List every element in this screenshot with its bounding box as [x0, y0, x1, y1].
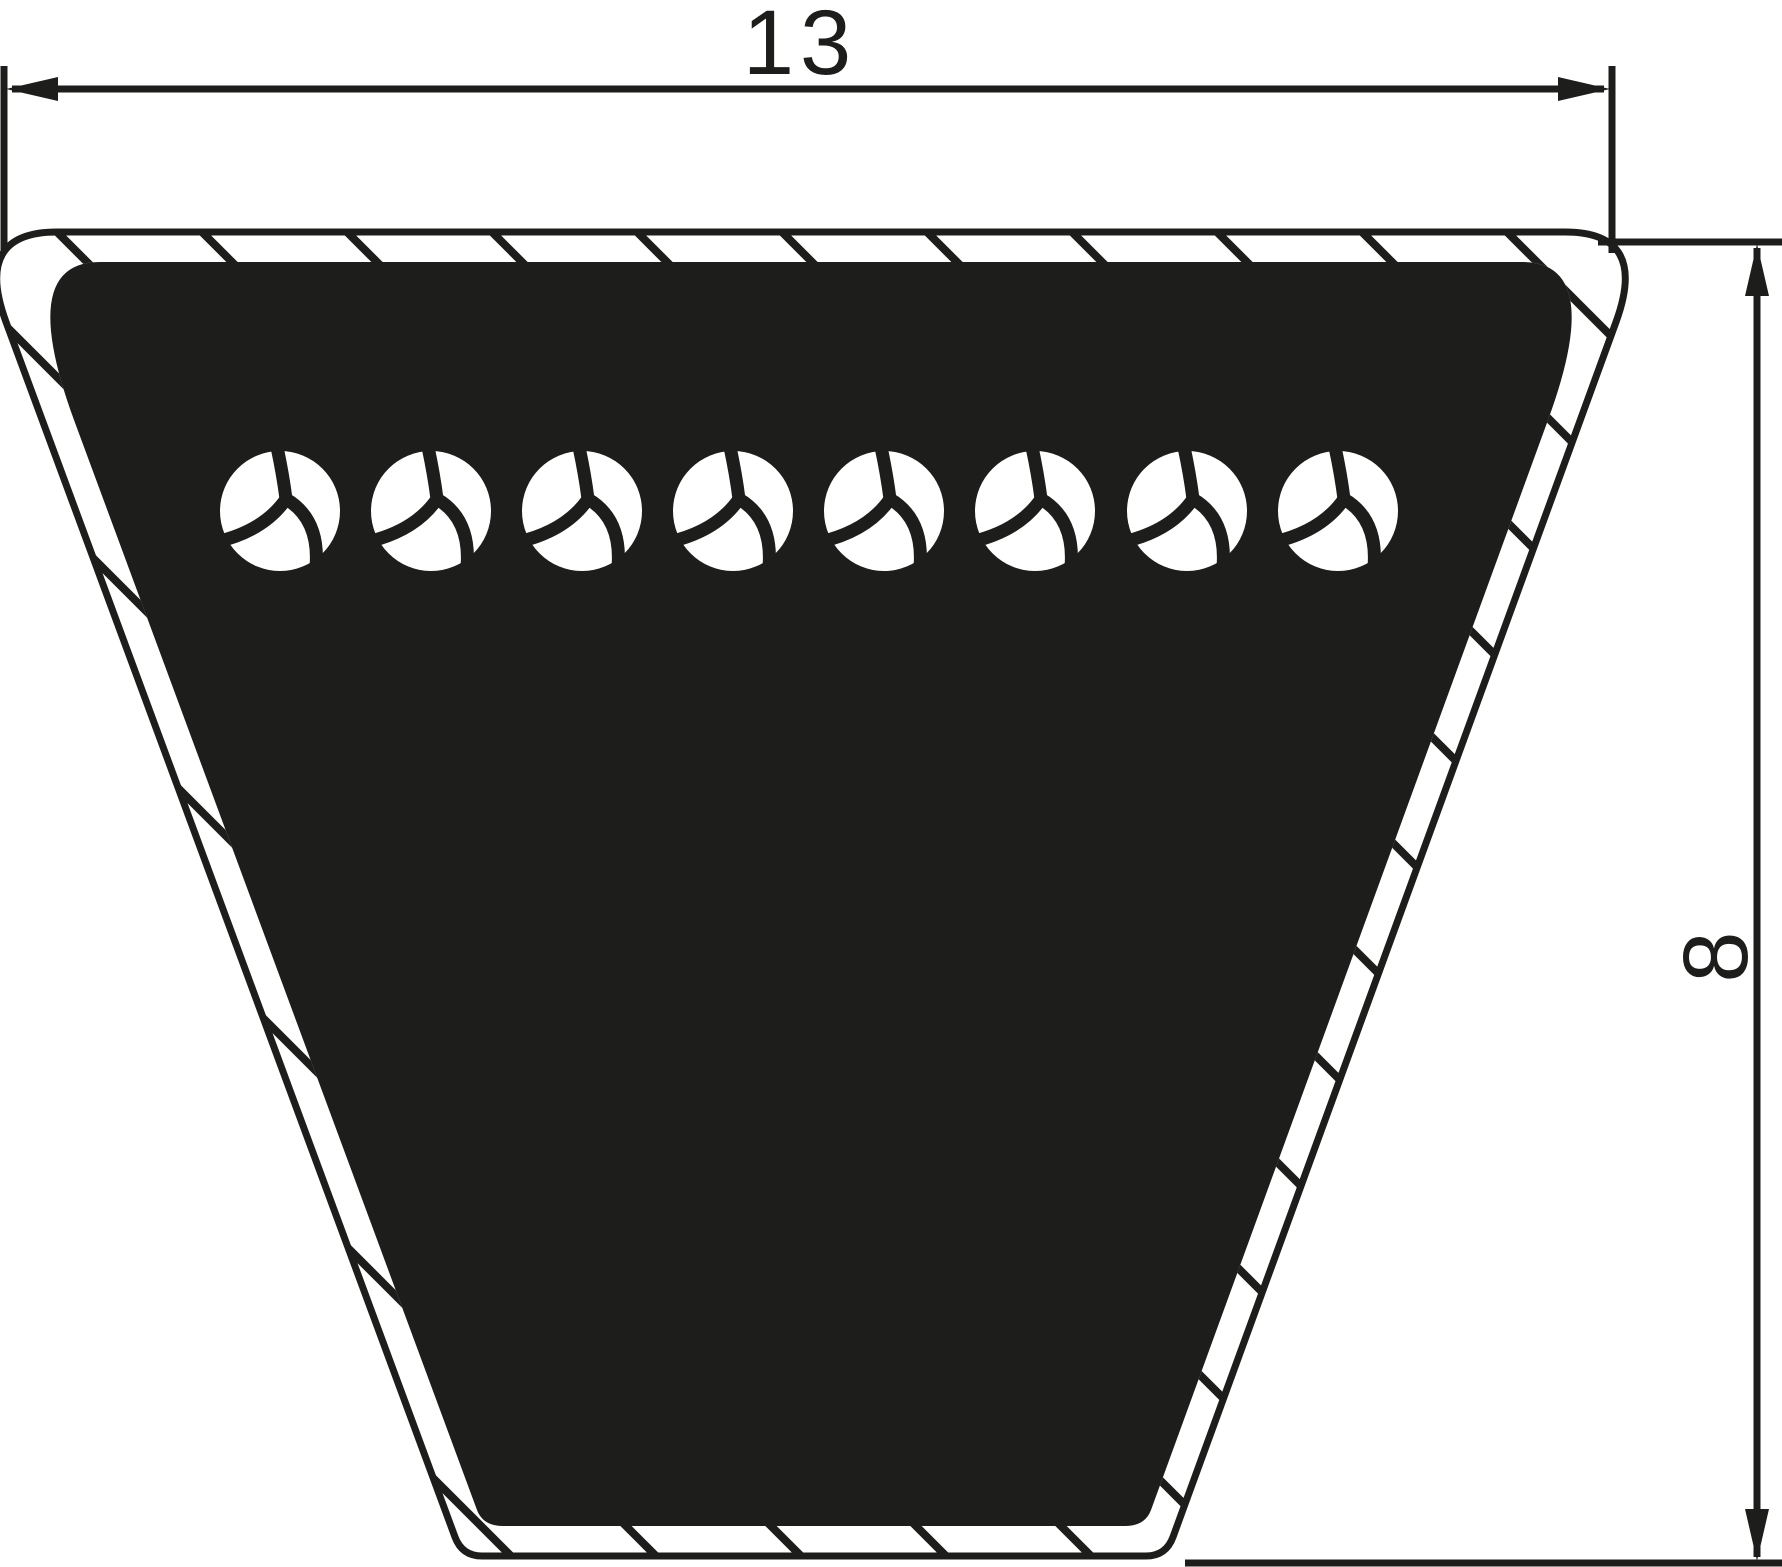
v-belt-cross-section-drawing: 13 8: [0, 0, 1782, 1567]
technical-drawing-canvas: 13 8: [0, 0, 1782, 1567]
width-dimension: [4, 66, 1612, 253]
width-dimension-label: 13: [743, 0, 857, 94]
height-arrowhead-bottom: [1745, 1509, 1769, 1561]
height-arrowhead-top: [1745, 244, 1769, 296]
width-arrowhead-left: [6, 77, 58, 101]
width-arrowhead-right: [1558, 77, 1610, 101]
height-dimension-label: 8: [1665, 925, 1767, 982]
